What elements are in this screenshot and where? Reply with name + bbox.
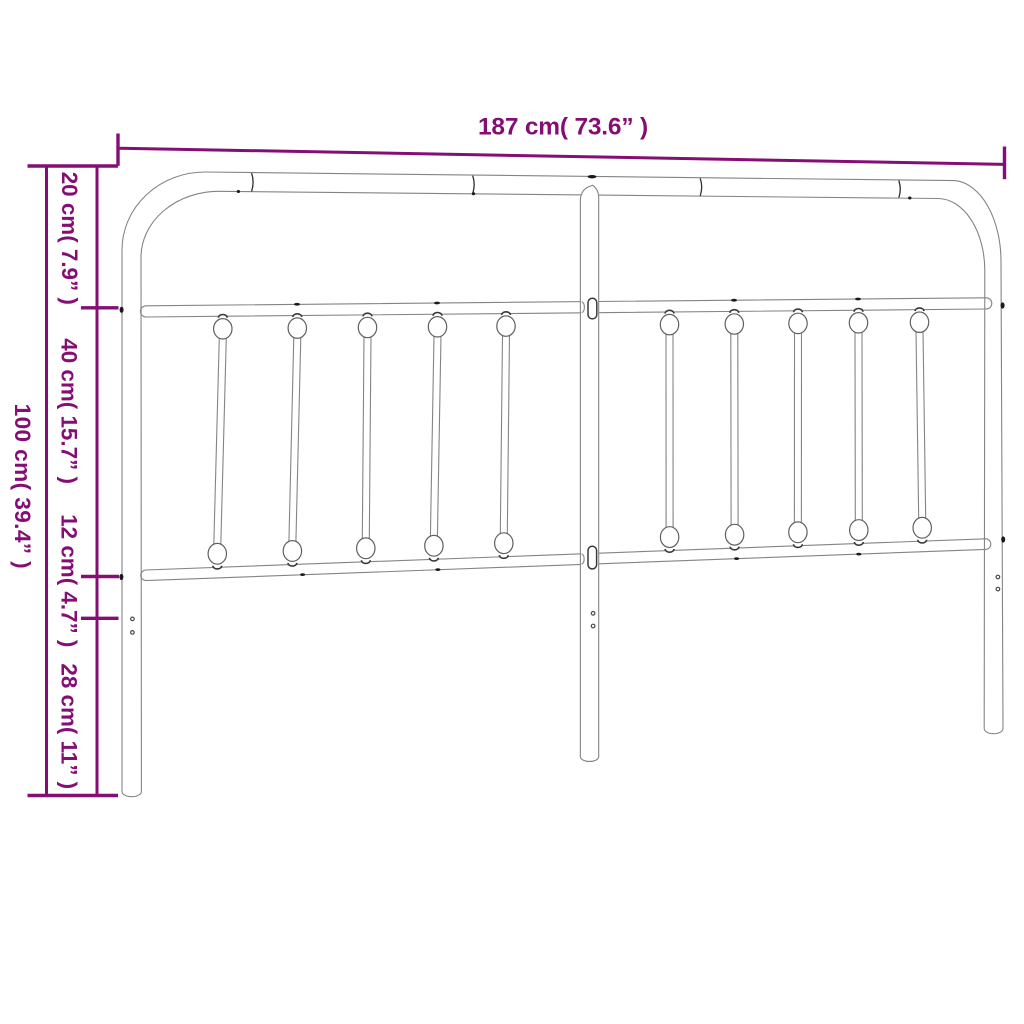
svg-text:40 cm( 15.7” ): 40 cm( 15.7” ) [57,338,82,484]
svg-text:20 cm( 7.9” ): 20 cm( 7.9” ) [57,172,82,305]
svg-text:12 cm( 4.7” ): 12 cm( 4.7” ) [57,514,82,647]
svg-text:187 cm( 73.6” ): 187 cm( 73.6” ) [478,114,648,141]
svg-text:100 cm( 39.4” ): 100 cm( 39.4” ) [10,404,35,570]
svg-text:28 cm( 11” ): 28 cm( 11” ) [57,663,82,789]
